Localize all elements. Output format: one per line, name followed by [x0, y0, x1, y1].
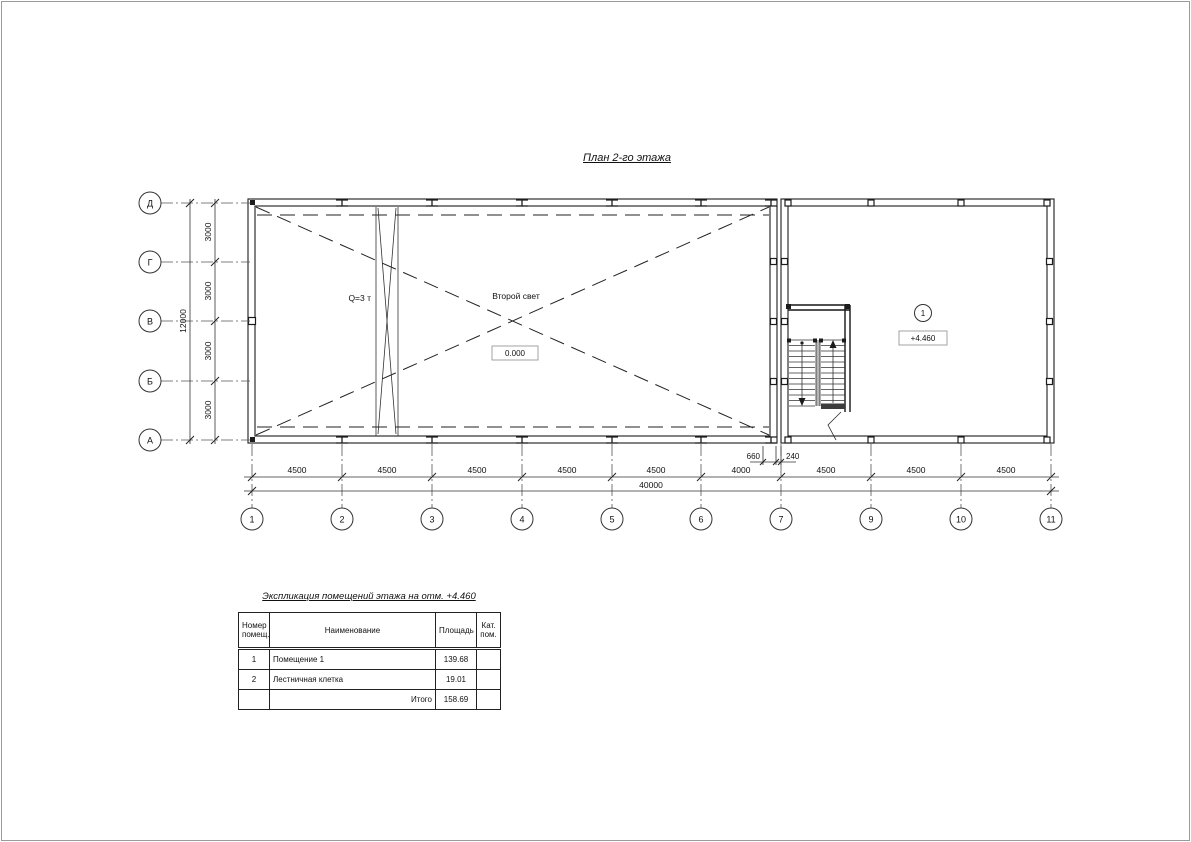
axis-label-6: 6: [698, 515, 703, 525]
axis-label-10: 10: [956, 515, 966, 525]
wall-offset-dimension: 660 240: [747, 446, 800, 465]
dim-seg-2: 4500: [378, 465, 397, 475]
axis-label-v: В: [147, 317, 153, 327]
axis-label-7: 7: [778, 515, 783, 525]
header-room-number-line1: Номер: [242, 621, 266, 630]
crane-beam: [376, 207, 398, 436]
total-label-cell: Итого: [270, 690, 436, 710]
room-area-cell: 139.68: [436, 649, 477, 670]
axis-label-a: А: [147, 436, 153, 446]
header-room-number-line2: помещ.: [242, 630, 266, 639]
dim-left-seg-4: 3000: [203, 400, 213, 419]
explication-section: Экспликация помещений этажа на отм. +4.4…: [238, 591, 538, 710]
room-name-cell: Лестничная клетка: [270, 670, 436, 690]
explication-title: Экспликация помещений этажа на отм. +4.4…: [238, 591, 500, 602]
table-row: 2 Лестничная клетка 19.01: [239, 670, 501, 690]
bottom-dimensions: 4500 4500 4500 4500 4500 4000 4500 4500 …: [244, 446, 1059, 495]
axis-label-4: 4: [519, 515, 524, 525]
room-category-cell: [477, 649, 501, 670]
crane-capacity-label: Q=3 т: [348, 293, 371, 303]
axis-label-2: 2: [339, 515, 344, 525]
header-category-line1: Кат.: [480, 621, 497, 630]
dim-left-seg-1: 3000: [203, 222, 213, 241]
drawing-sheet: План 2-го этажа: [0, 0, 1191, 842]
axis-label-1: 1: [249, 515, 254, 525]
axis-label-b: Б: [147, 377, 153, 387]
level-zero-label: 0.000: [505, 349, 526, 358]
room-name-cell: Помещение 1: [270, 649, 436, 670]
dim-seg-7: 4500: [817, 465, 836, 475]
room-number-cell: 2: [239, 670, 270, 690]
dim-offset-right: 240: [786, 452, 800, 461]
floor-plan-canvas: Д Г В Б А 12000 3000 3000 3000 3000 4500: [0, 0, 1191, 842]
stair-direction-up: [830, 340, 837, 403]
total-empty-cell: [239, 690, 270, 710]
dim-seg-1: 4500: [288, 465, 307, 475]
plan-annotations: Q=3 т Второй свет 0.000 1 +4.460: [348, 291, 947, 360]
table-total-row: Итого 158.69: [239, 690, 501, 710]
room-number-cell: 1: [239, 649, 270, 670]
dim-seg-9: 4500: [997, 465, 1016, 475]
axis-label-3: 3: [429, 515, 434, 525]
axis-label-9: 9: [868, 515, 873, 525]
axis-label-d: Д: [147, 199, 153, 209]
table-row: 1 Помещение 1 139.68: [239, 649, 501, 670]
left-dimensions: 12000 3000 3000 3000 3000: [178, 199, 219, 444]
total-area-cell: 158.69: [436, 690, 477, 710]
axis-label-g: Г: [148, 258, 153, 268]
room-number: 1: [921, 309, 926, 318]
stairwell: [786, 304, 850, 440]
vertical-axes: Д Г В Б А: [139, 192, 250, 451]
stair-flights: [787, 339, 846, 410]
dim-seg-5: 4500: [647, 465, 666, 475]
void-label: Второй свет: [492, 291, 540, 301]
dim-seg-6: 4000: [732, 465, 751, 475]
concrete-columns: [249, 200, 1053, 443]
explication-table: Номер помещ. Наименование Площадь Кат. п…: [238, 612, 501, 710]
header-name: Наименование: [270, 613, 436, 649]
room-category-cell: [477, 670, 501, 690]
horizontal-axes: 1 2 3 4 5 6 7 9 10 11: [241, 508, 1062, 530]
stair-landing-hatch: [821, 404, 845, 410]
dim-offset-left: 660: [747, 452, 761, 461]
dim-left-total: 12000: [178, 309, 188, 333]
header-area: Площадь: [436, 613, 477, 649]
total-category-cell: [477, 690, 501, 710]
table-header-row: Номер помещ. Наименование Площадь Кат. п…: [239, 613, 501, 649]
room-area-cell: 19.01: [436, 670, 477, 690]
axis-label-11: 11: [1046, 515, 1055, 525]
header-category: Кат. пом.: [477, 613, 501, 649]
dim-total: 40000: [639, 480, 663, 490]
level-mark-label: +4.460: [911, 334, 936, 343]
dim-left-seg-2: 3000: [203, 281, 213, 300]
dim-seg-8: 4500: [907, 465, 926, 475]
axis-label-5: 5: [609, 515, 614, 525]
floor-opening-marks: [256, 207, 769, 435]
header-room-number: Номер помещ.: [239, 613, 270, 649]
dim-seg-4: 4500: [558, 465, 577, 475]
header-category-line2: пом.: [480, 630, 497, 639]
bottom-axis-lines: [252, 444, 1051, 508]
dim-left-seg-3: 3000: [203, 341, 213, 360]
dim-seg-3: 4500: [468, 465, 487, 475]
